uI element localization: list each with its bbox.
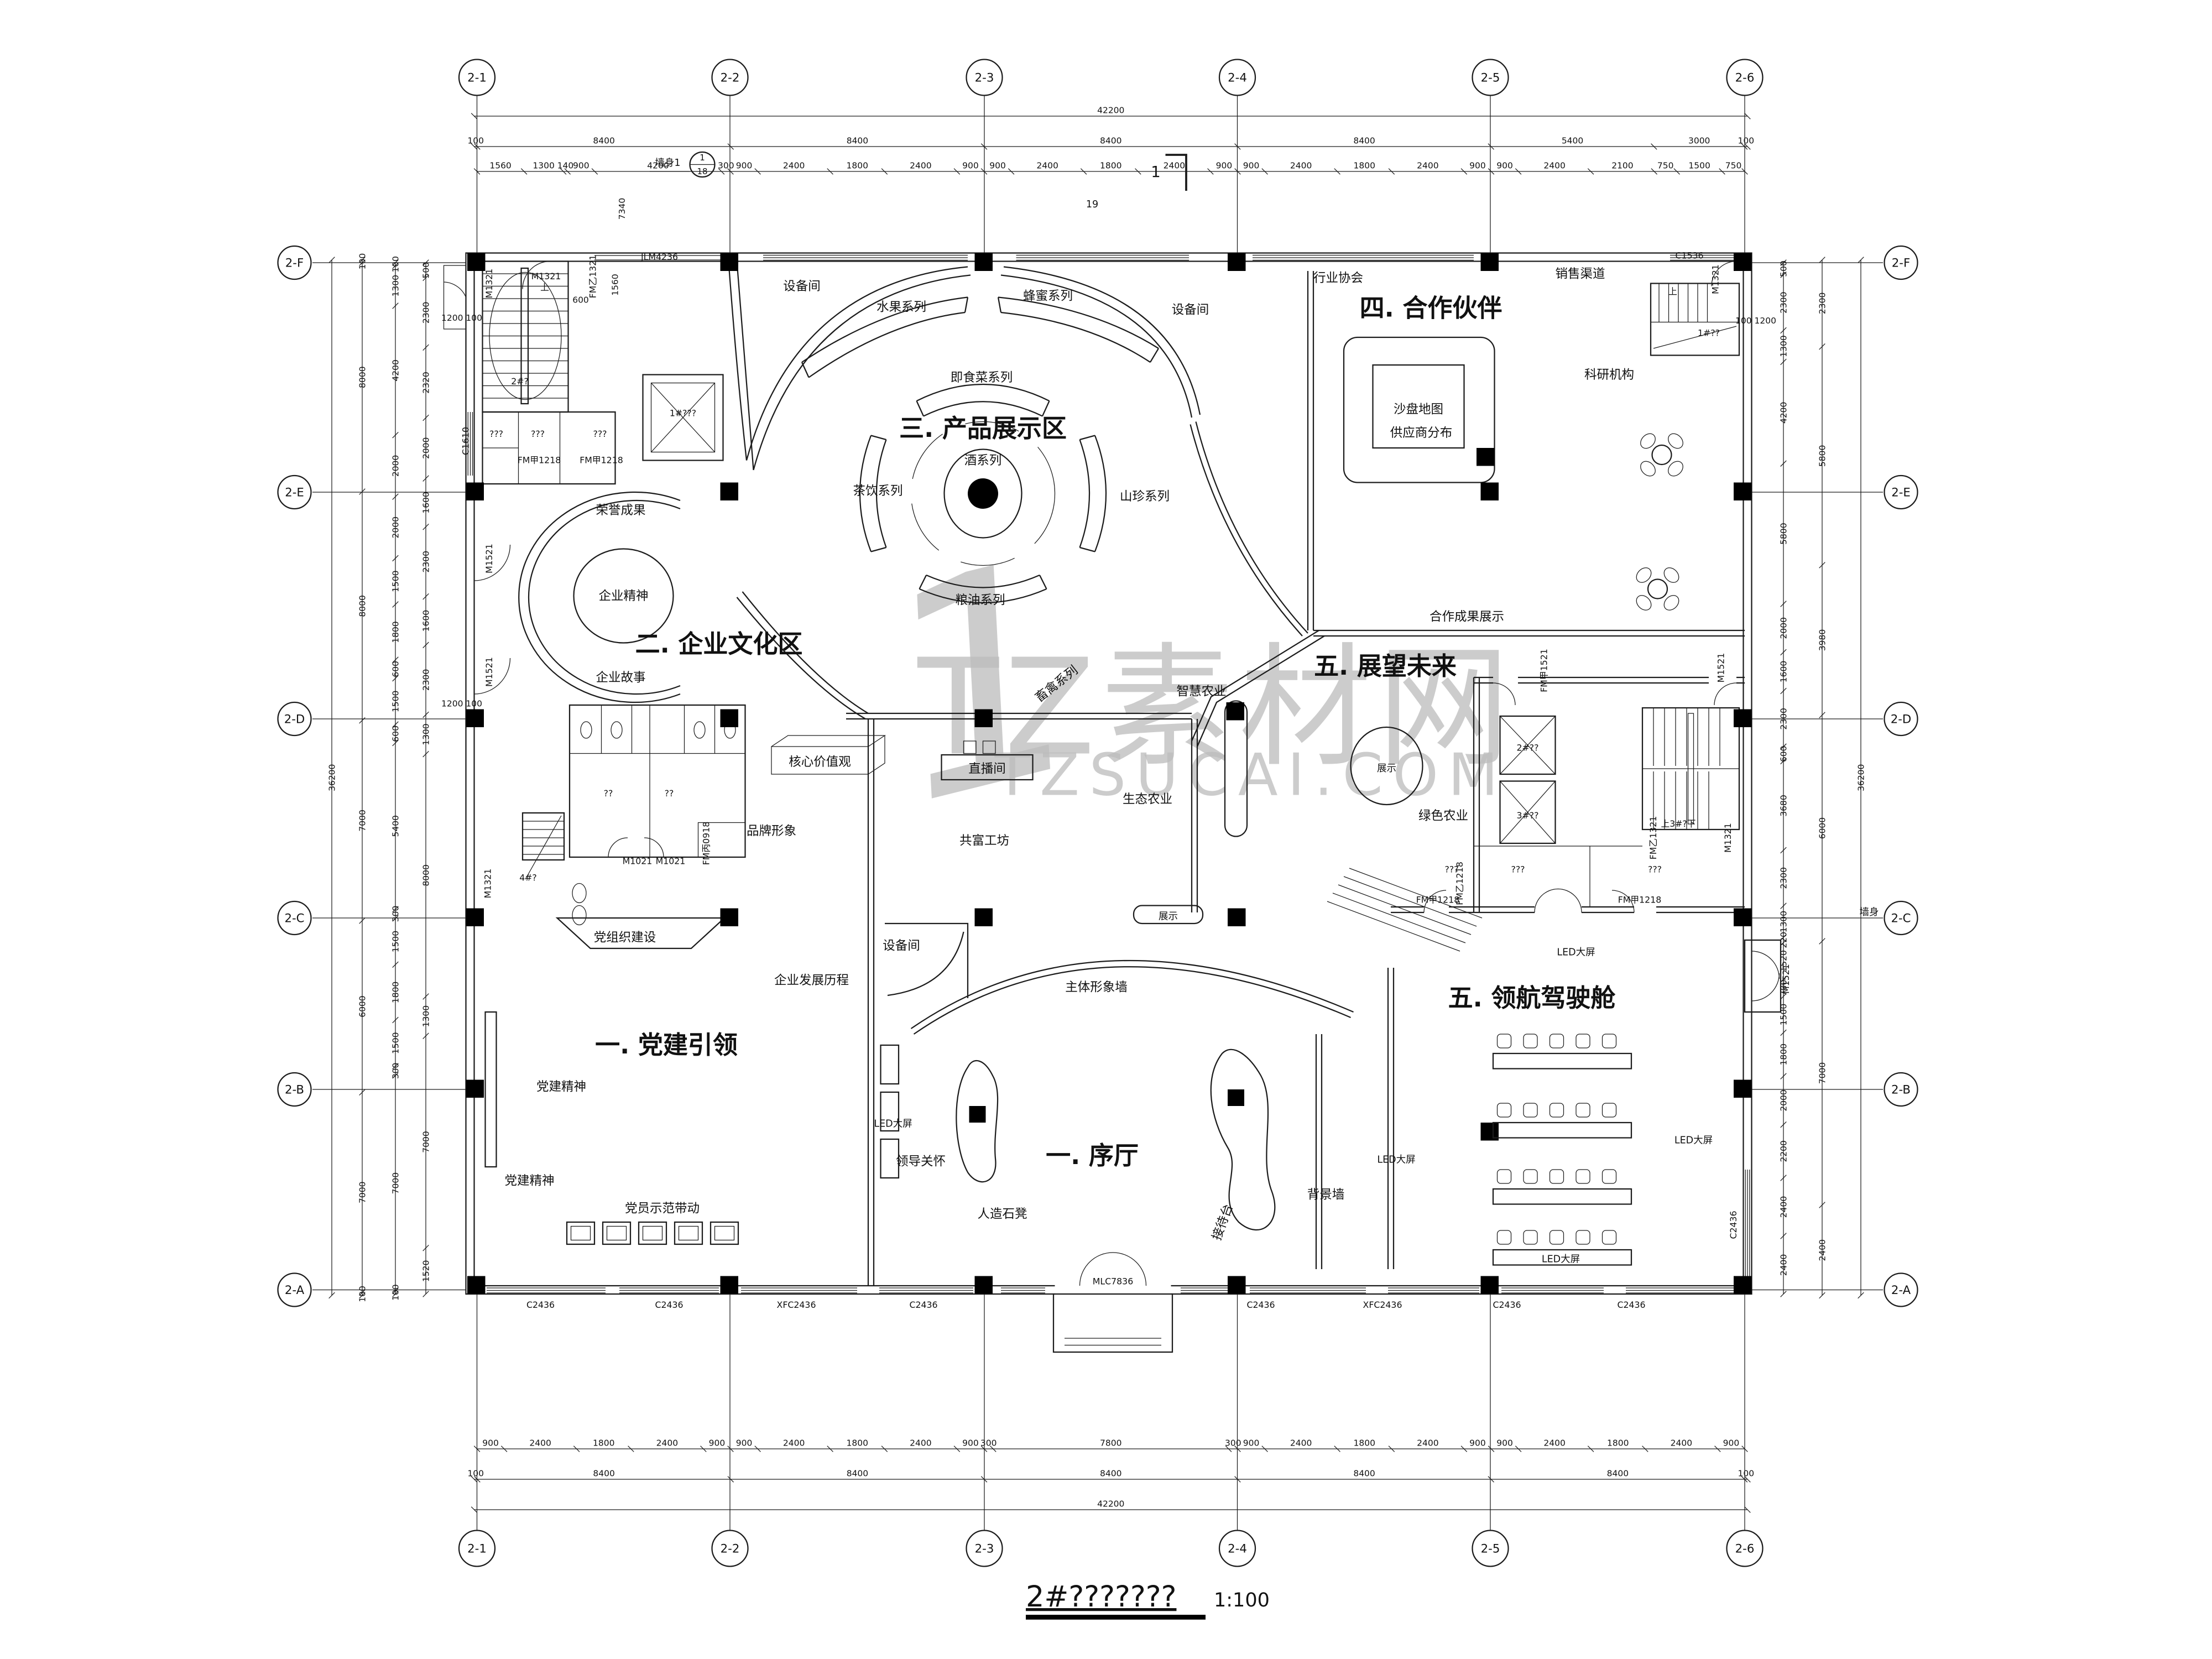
dim-value: 2400	[1543, 161, 1565, 171]
dim-value: 3000	[1688, 136, 1710, 146]
dim-value: 2400	[783, 1438, 805, 1448]
label-wine: 酒系列	[964, 453, 1002, 468]
dim-value: 7000	[358, 810, 368, 831]
tag-room-unknown: ???	[1444, 864, 1458, 875]
dim-value: 1600	[1779, 661, 1789, 682]
grid-bubble: 2-A	[1752, 1274, 1918, 1307]
dim-value: 600	[391, 661, 401, 677]
dim-value: 1800	[847, 161, 868, 171]
label-main-wall: 主体形象墙	[1065, 980, 1128, 995]
dim-value: 36200	[327, 764, 337, 791]
grid-bubble: 2-6	[1727, 1294, 1763, 1567]
dim-value: 2400	[910, 1438, 931, 1448]
wall-note-right: 墙身	[1860, 907, 1879, 918]
dim-value: 900	[709, 1438, 726, 1448]
svg-text:2-D: 2-D	[1891, 713, 1912, 727]
label-honey: 蜂蜜系列	[1023, 289, 1073, 304]
dim-value: 900	[1469, 161, 1486, 171]
tag-window: C2436	[1617, 1300, 1645, 1310]
tag-stair: 上3#?下	[1661, 818, 1695, 829]
tag-door: M1321	[1710, 264, 1721, 294]
label-reception: 接待台	[1209, 1202, 1236, 1242]
tag-door: M1521	[484, 657, 494, 687]
wall-detail-label: 墙身1	[655, 158, 680, 169]
dim-value: 900	[736, 1438, 753, 1448]
tag-stair: 4#?	[519, 873, 537, 883]
tag-door: FM甲1218	[580, 455, 623, 466]
svg-text:2-1: 2-1	[467, 71, 487, 85]
dim-value: 2400	[783, 161, 805, 171]
dim-text: 1560	[611, 274, 620, 295]
dim-value: 900	[962, 1438, 979, 1448]
svg-text:2-6: 2-6	[1735, 1542, 1755, 1556]
cockpit-chair	[1524, 1170, 1537, 1183]
cockpit-chair	[1524, 1103, 1537, 1117]
dim-value: 8400	[847, 136, 868, 146]
dim-value: 2000	[391, 517, 401, 538]
dim-value: 1500	[1688, 161, 1710, 171]
label-party-spirit: 党建精神	[536, 1080, 586, 1094]
label-story: 企业故事	[596, 671, 645, 685]
dim-value: 2300	[421, 669, 431, 691]
dim-value: 600	[391, 726, 401, 742]
dim-value: 300	[391, 1063, 401, 1079]
svg-text:2-D: 2-D	[284, 713, 305, 727]
label-display: 展示	[1377, 763, 1396, 774]
dim-value: 1800	[847, 1438, 868, 1448]
grid-bubble: 2-C	[278, 901, 466, 935]
dim-value: 2100	[1611, 161, 1633, 171]
dim-value: 2400	[529, 1438, 551, 1448]
label-brand: 品牌形象	[747, 824, 796, 838]
grid-bubble: 2-5	[1473, 1294, 1509, 1567]
tag-up: 上	[1668, 286, 1677, 297]
dim-value: 2400	[1290, 161, 1312, 171]
dim-value: 140	[557, 161, 574, 171]
dim-value: 5400	[391, 815, 401, 837]
label-equip-room: 设备间	[783, 279, 821, 294]
grid-bubble: 2-C	[1752, 901, 1918, 935]
dim-value: 2400	[1779, 1196, 1789, 1218]
cockpit-chair	[1603, 1230, 1616, 1244]
tag-door: FM乙1321	[588, 255, 598, 298]
cockpit-chair	[1550, 1103, 1564, 1117]
dim-value: 1800	[1779, 1044, 1789, 1065]
dim-value: 8400	[1100, 136, 1121, 146]
svg-text:2-3: 2-3	[975, 1542, 994, 1556]
title-block: 2#??????? 1:100	[1026, 1580, 1270, 1620]
svg-text:2-F: 2-F	[1892, 257, 1910, 270]
sheet-note: 19	[1086, 199, 1098, 210]
dim-value: 900	[736, 161, 753, 171]
cockpit-chair	[1576, 1103, 1590, 1117]
dim-value: 1560	[489, 161, 511, 171]
tag-door: FM甲1218	[1618, 895, 1661, 905]
dim-value: 2320	[421, 372, 431, 393]
tag-door: FM丙0918	[701, 822, 712, 865]
svg-text:2-2: 2-2	[721, 71, 740, 85]
tag-door: M1521	[1781, 964, 1791, 994]
svg-text:2-E: 2-E	[285, 486, 304, 500]
tag-door: M1321	[483, 869, 493, 899]
cockpit-chair	[1498, 1170, 1511, 1183]
tag-door: M1021	[623, 856, 653, 867]
label-sand-map: 沙盘地图	[1394, 403, 1443, 417]
label-live-room: 直播间	[968, 762, 1006, 776]
dim-value: 900	[1723, 1438, 1740, 1448]
svg-text:2-C: 2-C	[284, 912, 304, 926]
dim-value: 1300	[391, 275, 401, 296]
dim-value: 2000	[1779, 617, 1789, 639]
cockpit-chair	[1524, 1034, 1537, 1048]
label-sales: 销售渠道	[1555, 267, 1605, 281]
tag-window: C1536	[1675, 251, 1703, 261]
label-party-model: 党员示范带动	[625, 1202, 700, 1216]
dim-value: 8400	[1607, 1469, 1629, 1479]
dim-value: 900	[1243, 161, 1260, 171]
dim-value: 7000	[1818, 1062, 1828, 1084]
label-history: 企业发展历程	[774, 973, 849, 988]
dim-value: 1600	[421, 610, 431, 632]
dim-value: 7000	[391, 1172, 401, 1194]
grid-bubble: 2-3	[967, 1294, 1003, 1567]
label-leader-care: 领导关怀	[896, 1155, 946, 1169]
label-tea: 茶饮系列	[853, 484, 902, 498]
svg-text:2-3: 2-3	[975, 71, 994, 85]
dim-value: 8400	[1100, 1469, 1121, 1479]
label-led-screen: LED大屏	[874, 1119, 912, 1130]
tag-window: XFC2436	[1363, 1300, 1402, 1310]
dim-value: 5800	[1818, 445, 1828, 467]
dim-value: 2400	[656, 1438, 678, 1448]
dim-value: 2000	[391, 455, 401, 477]
tag-stair: 1#??	[1698, 328, 1720, 338]
dim-value: 2200	[1779, 1140, 1789, 1162]
dim-value: 4200	[1779, 402, 1789, 424]
dim-value: 2400	[1164, 161, 1185, 171]
dim-value: 2400	[910, 161, 931, 171]
grid-bubble: 2-F	[278, 246, 466, 279]
dim-value: 1500	[391, 691, 401, 712]
cockpit-chair	[1576, 1170, 1590, 1183]
label-spirit: 企业精神	[598, 589, 648, 603]
tag-door: MLC7836	[1093, 1276, 1133, 1287]
grid-bubble: 2-2	[712, 1294, 748, 1567]
cockpit-chair	[1524, 1230, 1537, 1244]
tag-room-unknown: ??	[604, 788, 613, 799]
label-fruit: 水果系列	[877, 300, 926, 315]
dim-value: 8000	[421, 864, 431, 886]
dim-value: 2400	[1036, 161, 1058, 171]
dim-value: 100	[467, 1469, 484, 1479]
cockpit-chair	[1550, 1230, 1564, 1244]
dim-value: 8000	[358, 366, 368, 388]
grid-bubble: 2-3	[967, 60, 1003, 253]
dim-value: 500	[421, 262, 431, 279]
wall-detail-sheet: 18	[697, 166, 707, 176]
grid-bubble: 2-4	[1219, 60, 1255, 253]
dim-value: 750	[1725, 161, 1742, 171]
dim-value: 3980	[1818, 629, 1828, 651]
dim-value: 100	[391, 1284, 401, 1301]
tag-room-unknown: ???	[1511, 864, 1525, 875]
dim-value: 100	[1738, 1469, 1754, 1479]
dim-value: 1800	[1607, 1438, 1629, 1448]
label-equip-room: 设备间	[883, 939, 920, 953]
cockpit-chair	[1498, 1230, 1511, 1244]
label-workshop: 共富工坊	[959, 834, 1009, 848]
tag-room-unknown: ???	[489, 429, 503, 439]
dim-value: 1300	[421, 723, 431, 745]
tag-room-unknown: ??	[665, 788, 674, 799]
cockpit-chair	[1603, 1170, 1616, 1183]
dim-value: 1500	[391, 931, 401, 952]
tag-stair: 2#?	[511, 376, 529, 387]
dim-value: 750	[1657, 161, 1674, 171]
grid-bubble: 2-B	[1752, 1073, 1918, 1106]
dim-value: 1800	[1354, 161, 1375, 171]
watermark: 1 TZ素材网 TZSUCAI.COM	[853, 496, 1515, 869]
svg-text:2-B: 2-B	[285, 1083, 304, 1097]
tag-door: FM甲1521	[1539, 649, 1550, 692]
dim-value: 8400	[1353, 136, 1375, 146]
dim-value: 1300	[421, 1005, 431, 1027]
label-honor: 荣誉成果	[596, 503, 645, 518]
grid-bubble: 2-A	[278, 1274, 466, 1307]
label-research: 科研机构	[1584, 368, 1634, 382]
dim-value: 8000	[358, 595, 368, 617]
tag-door: M1321	[531, 271, 561, 281]
tag-elevator: 3#??	[1517, 810, 1539, 821]
cockpit-chair	[1576, 1230, 1590, 1244]
dim-value: 1300	[1779, 911, 1789, 932]
dim-value: 900	[989, 161, 1006, 171]
dim-value: 900	[1243, 1438, 1260, 1448]
dim-value: 42200	[1097, 106, 1124, 116]
label-led-screen: LED大屏	[1674, 1135, 1713, 1146]
tag-door: M1521	[1716, 653, 1726, 683]
dim-value: 2300	[421, 302, 431, 324]
svg-text:2-C: 2-C	[1891, 912, 1911, 926]
table-4-chairs	[1634, 565, 1682, 613]
section-mark-no: 1	[1151, 163, 1161, 181]
dim-value: 4200	[391, 359, 401, 381]
dim-value: 1800	[391, 621, 401, 643]
grid-bubble: 2-D	[278, 702, 466, 735]
dim-value: 1500	[391, 1032, 401, 1054]
table-4-chairs	[1637, 431, 1686, 479]
dim-value: 100	[358, 253, 368, 270]
dim-value: 5400	[1562, 136, 1583, 146]
dim-value: 300	[391, 906, 401, 922]
dim-value: 2300	[1779, 867, 1789, 889]
dim-value: 2400	[1543, 1438, 1565, 1448]
dim-value: 100	[467, 136, 484, 146]
cockpit-chair	[1603, 1103, 1616, 1117]
label-display: 展示	[1159, 911, 1178, 922]
tag-room-unknown: ???	[531, 429, 545, 439]
dim-value: 8400	[593, 1469, 614, 1479]
cockpit-furniture	[1493, 1034, 1631, 1265]
zone-title-party: 一. 党建引领	[595, 1030, 738, 1060]
dim-value: 2000	[421, 437, 431, 459]
grid-bubble: 2-F	[1752, 246, 1918, 279]
label-grain: 粮油系列	[955, 593, 1005, 608]
floor-plan-drawing: 1 TZ素材网 TZSUCAI.COM 42200 10084008400840…	[0, 0, 2212, 1659]
tag-window: C2436	[1246, 1300, 1275, 1310]
dim-value: 1800	[391, 982, 401, 1003]
label-smart-agri: 智慧农业	[1176, 685, 1226, 699]
cockpit-chair	[1498, 1103, 1511, 1117]
dim-value: 600	[1779, 746, 1789, 763]
zone-title-product: 三. 产品展示区	[899, 414, 1067, 443]
dim-value: 900	[573, 161, 589, 171]
grid-bubble: 2-E	[278, 476, 466, 509]
tag-window: C2436	[1493, 1300, 1521, 1310]
zone-title-lobby: 一. 序厅	[1046, 1141, 1139, 1170]
grid-bubble: 2-D	[1752, 702, 1918, 735]
dim-value: 1800	[1354, 1438, 1375, 1448]
svg-text:2-2: 2-2	[721, 1542, 740, 1556]
dim-value: 2400	[1779, 1254, 1789, 1276]
wall-detail-no: 1	[700, 153, 705, 163]
dim-value: 900	[1496, 1438, 1513, 1448]
label-core-values: 核心价值观	[789, 755, 851, 769]
cockpit-desk	[1493, 1053, 1631, 1069]
svg-text:2-B: 2-B	[1891, 1083, 1911, 1097]
dim-value: 900	[962, 161, 979, 171]
label-party-org: 党组织建设	[594, 931, 656, 945]
dim-value: 2400	[1417, 1438, 1438, 1448]
dim-value: 1300	[533, 161, 554, 171]
dim-text: 100 1200	[1735, 316, 1776, 326]
svg-text:2-4: 2-4	[1228, 1542, 1247, 1556]
svg-text:2-F: 2-F	[285, 257, 304, 270]
label-instant-food: 即食菜系列	[951, 371, 1013, 385]
grid-bubble: 2-5	[1473, 60, 1509, 253]
cockpit-chair	[1576, 1034, 1590, 1048]
tag-door: FM甲1218	[518, 455, 561, 466]
grid-bubble: 2-B	[278, 1073, 466, 1106]
tag-door: FM甲1218	[1416, 895, 1459, 905]
grid-bubble: 2-6	[1727, 60, 1763, 253]
tag-door: M1521	[484, 544, 494, 573]
tag-room-unknown: ???	[593, 429, 607, 439]
dim-value: 100	[357, 1286, 367, 1302]
dim-text: 600	[572, 295, 589, 305]
label-bg-wall: 背景墙	[1307, 1188, 1345, 1202]
tag-window: C2436	[526, 1300, 555, 1310]
dim-value: 8400	[593, 136, 614, 146]
tag-window: XFC2436	[777, 1300, 816, 1310]
dim-value: 1300	[1779, 335, 1789, 357]
dim-value: 1800	[593, 1438, 614, 1448]
dim-value: 3680	[1779, 795, 1789, 816]
dim-value: 900	[1216, 161, 1233, 171]
dim-value: 900	[1469, 1438, 1486, 1448]
dim-value: 300	[718, 161, 734, 171]
svg-text:2-4: 2-4	[1228, 71, 1247, 85]
label-led-screen: LED大屏	[1377, 1155, 1415, 1166]
dim-value: 7000	[421, 1131, 431, 1152]
tag-door: M1021	[656, 856, 686, 867]
svg-text:2-E: 2-E	[1891, 486, 1911, 500]
dim-value: 36200	[1856, 764, 1866, 791]
label-party-spirit: 党建精神	[504, 1174, 554, 1188]
zone-title-partner: 四. 合作伙伴	[1360, 294, 1503, 323]
label-green-agri: 绿色农业	[1418, 809, 1468, 823]
dim-value: 8400	[847, 1469, 868, 1479]
dim-value: 7800	[1100, 1438, 1121, 1448]
drawing-scale: 1:100	[1214, 1589, 1270, 1611]
label-association: 行业协会	[1313, 271, 1363, 285]
dim-value: 2400	[1671, 1438, 1692, 1448]
tag-door: M1321	[1723, 823, 1733, 853]
dim-value: 100	[391, 256, 401, 273]
dim-value: 1500	[391, 570, 401, 592]
grid-bubble: 2-E	[1752, 476, 1918, 509]
label-sand-sub: 供应商分布	[1390, 426, 1453, 440]
dim-value: 2300	[421, 551, 431, 572]
dim-value: 900	[482, 1438, 499, 1448]
dim-value: 6000	[358, 995, 368, 1017]
label-mountain: 山珍系列	[1120, 489, 1170, 504]
dim-value: 2300	[1818, 293, 1828, 314]
tag-window: C2436	[909, 1300, 937, 1310]
tag-window: C1610	[461, 427, 471, 455]
label-equip-room: 设备间	[1172, 303, 1209, 317]
dim-text: 1200 100	[441, 699, 482, 709]
dim-value: 7000	[357, 1182, 367, 1203]
tag-elevator: 2#??	[1517, 743, 1539, 753]
drawing-title: 2#???????	[1026, 1580, 1176, 1614]
svg-text:2-5: 2-5	[1481, 71, 1500, 85]
label-stone-bench: 人造石凳	[977, 1207, 1027, 1222]
tag-window: C2436	[655, 1300, 683, 1310]
cockpit-desk	[1493, 1189, 1631, 1204]
tag-door: JLM4236	[640, 252, 678, 262]
tag-window: C2436	[1728, 1211, 1739, 1239]
dim-value: 2400	[1817, 1239, 1827, 1261]
tag-door: FM乙1321	[1648, 816, 1658, 859]
zone-title-culture: 二. 企业文化区	[635, 629, 803, 659]
cockpit-chair	[1603, 1034, 1616, 1048]
svg-text:2-5: 2-5	[1481, 1542, 1500, 1556]
tag-elevator: 1#???	[670, 408, 696, 419]
label-coop-result: 合作成果展示	[1430, 610, 1504, 624]
tag-door: M1321	[484, 269, 494, 299]
zone-title-cockpit: 五. 领航驾驶舱	[1448, 983, 1616, 1013]
dim-value: 2000	[1779, 1089, 1789, 1111]
grid-bubble: 2-1	[459, 1294, 495, 1567]
dim-value: 900	[1496, 161, 1513, 171]
dim-value: 300	[1225, 1438, 1241, 1448]
svg-text:2-A: 2-A	[1891, 1284, 1911, 1297]
dim-value: 42200	[1097, 1499, 1124, 1509]
svg-text:2-6: 2-6	[1735, 71, 1755, 85]
tag-room-unknown: ???	[1648, 864, 1662, 875]
svg-text:2-1: 2-1	[467, 1542, 487, 1556]
dim-value: 100	[1738, 136, 1754, 146]
dim-text: 1200 100	[441, 313, 482, 323]
dim-text: 7340	[617, 198, 627, 220]
dim-value: 8400	[1353, 1469, 1375, 1479]
dim-value: 1520	[421, 1260, 431, 1282]
watermark-url: TZSUCAI.COM	[994, 742, 1507, 809]
dim-value: 1800	[1100, 161, 1121, 171]
svg-text:2-A: 2-A	[285, 1284, 305, 1297]
label-eco-agri: 生态农业	[1123, 792, 1172, 807]
